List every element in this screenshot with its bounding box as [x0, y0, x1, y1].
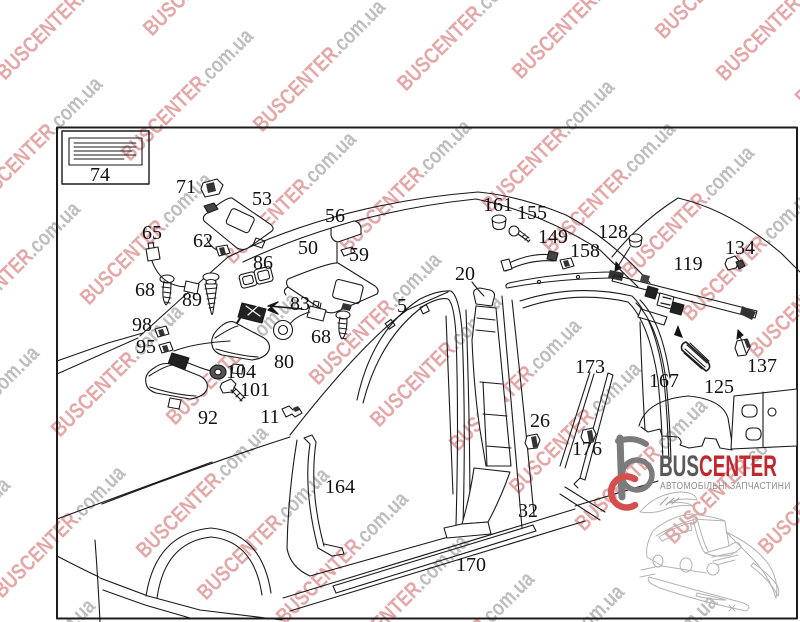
- svg-text:62: 62: [193, 230, 213, 252]
- svg-text:101: 101: [240, 379, 270, 401]
- svg-text:155: 155: [517, 202, 547, 224]
- svg-text:53: 53: [252, 188, 272, 210]
- svg-text:134: 134: [725, 237, 755, 259]
- svg-text:176: 176: [572, 438, 602, 460]
- svg-text:50: 50: [298, 237, 318, 259]
- svg-text:86: 86: [253, 252, 273, 274]
- svg-text:83: 83: [290, 293, 310, 315]
- svg-text:164: 164: [325, 476, 355, 498]
- svg-text:11: 11: [260, 406, 279, 428]
- svg-text:56: 56: [325, 205, 345, 227]
- svg-text:173: 173: [575, 356, 605, 378]
- svg-text:80: 80: [274, 351, 294, 373]
- svg-text:149: 149: [538, 226, 568, 248]
- svg-text:119: 119: [673, 253, 702, 275]
- svg-text:128: 128: [598, 221, 628, 243]
- svg-text:95: 95: [136, 336, 156, 358]
- svg-text:89: 89: [182, 289, 202, 311]
- svg-text:АВТОМОБІЛЬНІ ЗАПЧАСТИНИ: АВТОМОБІЛЬНІ ЗАПЧАСТИНИ: [660, 480, 791, 492]
- svg-text:170: 170: [456, 554, 486, 576]
- svg-text:125: 125: [704, 376, 734, 398]
- svg-text:68: 68: [311, 326, 331, 348]
- svg-text:158: 158: [570, 240, 600, 262]
- svg-text:5: 5: [397, 295, 407, 317]
- svg-text:167: 167: [649, 370, 679, 392]
- svg-text:71: 71: [176, 176, 196, 198]
- svg-text:32: 32: [518, 500, 538, 522]
- svg-text:65: 65: [142, 222, 162, 244]
- svg-text:161: 161: [483, 194, 513, 216]
- svg-text:26: 26: [530, 410, 550, 432]
- svg-text:98: 98: [132, 314, 152, 336]
- svg-text:59: 59: [349, 244, 369, 266]
- svg-text:20: 20: [455, 263, 475, 285]
- svg-text:92: 92: [198, 407, 218, 429]
- svg-text:BUSCENTER: BUSCENTER: [659, 450, 777, 483]
- svg-text:137: 137: [747, 355, 777, 377]
- svg-text:74: 74: [90, 164, 110, 186]
- svg-text:68: 68: [135, 279, 155, 301]
